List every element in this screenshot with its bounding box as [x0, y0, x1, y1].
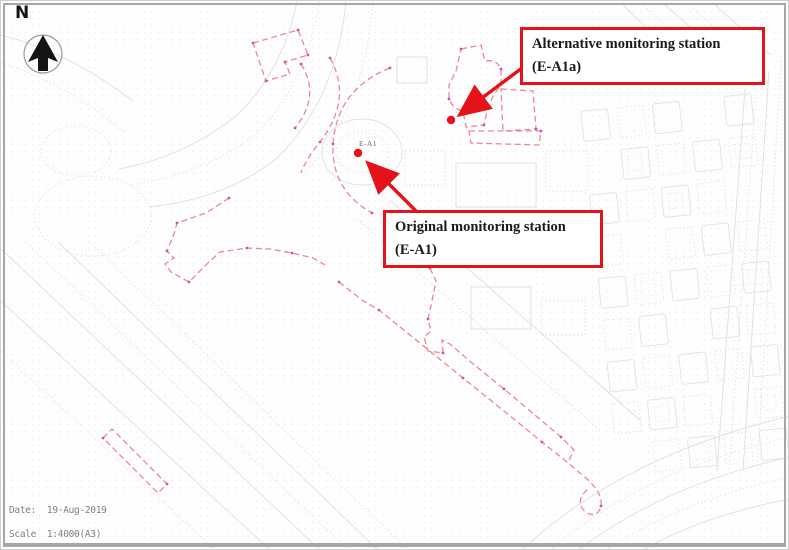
leader-arrow-original — [370, 165, 417, 212]
map-sheet: N Alternative monitoring station (E-A1a)… — [0, 0, 789, 550]
callout-alternative-station: Alternative monitoring station (E-A1a) — [520, 27, 765, 85]
drawing-footer: Date: 19-Aug-2019 Scale 1:4000(A3) — [9, 505, 107, 541]
leader-arrow-alternative — [462, 68, 522, 113]
station-map-label: E-A1 — [359, 139, 377, 148]
footer-scale: Scale 1:4000(A3) — [9, 529, 101, 540]
callout-alternative-line2: (E-A1a) — [532, 57, 753, 78]
station-dot-original — [354, 149, 362, 157]
callout-original-station: Original monitoring station (E-A1) — [383, 210, 603, 268]
callout-original-line1: Original monitoring station — [395, 217, 591, 238]
callout-original-line2: (E-A1) — [395, 240, 591, 261]
callout-alternative-line1: Alternative monitoring station — [532, 34, 753, 55]
station-dot-alternative — [447, 116, 455, 124]
footer-date: Date: 19-Aug-2019 — [9, 505, 107, 516]
north-label: N — [15, 3, 29, 23]
